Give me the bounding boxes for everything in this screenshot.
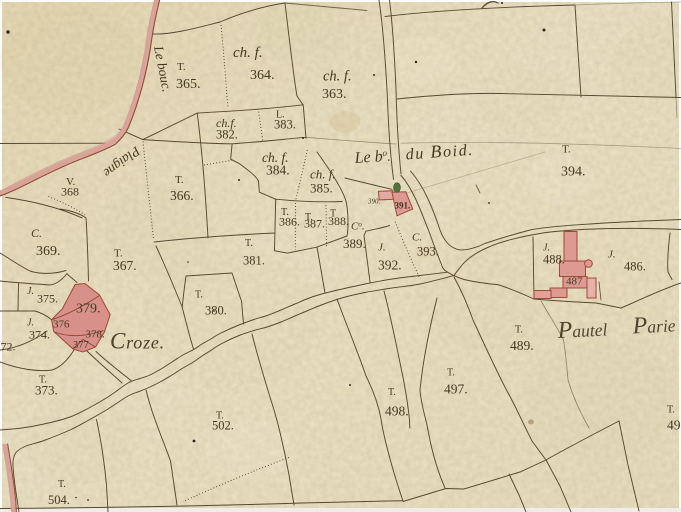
svg-text:72.: 72. (1, 340, 16, 354)
svg-text:49: 49 (667, 418, 681, 433)
svg-text:Parie: Parie (631, 311, 676, 339)
svg-text:363.: 363. (322, 87, 347, 102)
svg-text:488.: 488. (543, 253, 565, 267)
svg-text:377: 377 (73, 340, 89, 351)
svg-text:381.: 381. (243, 254, 265, 268)
svg-text:T.: T. (447, 368, 455, 379)
svg-text:366.: 366. (170, 188, 194, 203)
svg-text:J.: J. (378, 242, 386, 254)
svg-text:T.: T. (667, 405, 675, 416)
svg-text:487: 487 (566, 276, 583, 288)
svg-text:489.: 489. (510, 338, 534, 353)
svg-text:374.: 374. (29, 328, 50, 342)
svg-text:Co.: Co. (351, 221, 365, 233)
svg-text:379.: 379. (76, 302, 101, 317)
svg-text:T.: T. (195, 290, 203, 301)
svg-text:Croze.: Croze. (110, 329, 165, 354)
svg-text:387.: 387. (304, 217, 325, 231)
svg-text:ch. f.: ch. f. (233, 45, 263, 61)
svg-text:382.: 382. (216, 128, 238, 142)
svg-text:365.: 365. (176, 77, 201, 92)
svg-text:391.: 391. (395, 201, 411, 211)
svg-text:J.: J. (608, 249, 616, 261)
svg-text:389.: 389. (343, 236, 366, 251)
svg-text:384.: 384. (266, 163, 290, 178)
svg-text:364.: 364. (250, 68, 275, 83)
svg-text:380.: 380. (205, 304, 227, 318)
svg-text:T.: T. (58, 479, 66, 490)
svg-text:498.: 498. (385, 404, 409, 419)
svg-text:J.: J. (27, 286, 34, 297)
svg-text:388.: 388. (328, 214, 349, 228)
svg-text:394.: 394. (561, 165, 586, 180)
svg-text:T.: T. (388, 387, 396, 398)
svg-text:367.: 367. (113, 258, 137, 273)
svg-text:390.: 390. (367, 198, 381, 206)
svg-text:ch. f.: ch. f. (323, 69, 352, 85)
svg-text:385.: 385. (310, 181, 333, 196)
svg-text:T.: T. (515, 325, 523, 336)
svg-text:486.: 486. (624, 260, 646, 274)
svg-text:368: 368 (61, 185, 79, 199)
svg-text:376: 376 (53, 319, 70, 331)
svg-text:502.: 502. (212, 419, 234, 433)
svg-text:C.: C. (31, 226, 42, 240)
svg-text:T.: T. (245, 238, 253, 249)
svg-text:392.: 392. (378, 258, 402, 273)
svg-text:ch. f.: ch. f. (310, 167, 336, 182)
svg-text:386.: 386. (279, 215, 300, 229)
svg-text:C.: C. (412, 232, 422, 244)
svg-text:497.: 497. (444, 382, 468, 397)
svg-text:383.: 383. (274, 118, 296, 132)
svg-text:373.: 373. (35, 383, 58, 398)
svg-text:T.: T. (177, 61, 186, 73)
svg-text:375.: 375. (37, 292, 58, 306)
svg-text:504.: 504. (48, 493, 70, 507)
svg-text:T.: T. (562, 144, 571, 156)
svg-text:378.: 378. (86, 329, 106, 341)
svg-text:393.: 393. (417, 245, 439, 259)
svg-text:369.: 369. (36, 244, 61, 259)
svg-text:T.: T. (175, 174, 184, 186)
